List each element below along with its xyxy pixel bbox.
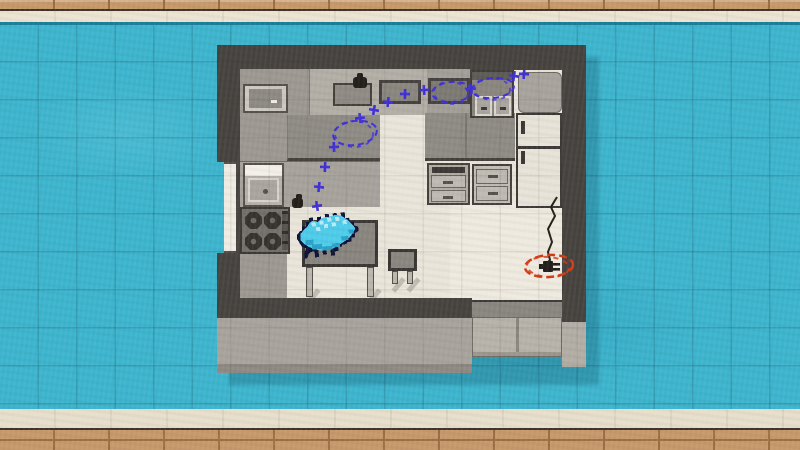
window-left <box>224 162 236 253</box>
wall-top <box>217 45 586 70</box>
burner-icon <box>264 212 281 229</box>
counter-left-bottom <box>240 254 287 298</box>
exterior-cabinet-fronts <box>472 317 562 357</box>
cabinet-divider <box>516 318 519 356</box>
table[interactable] <box>302 220 378 267</box>
wall-left-upper <box>217 45 240 162</box>
oven-drawer <box>431 190 466 202</box>
sink-basin-left <box>475 96 492 116</box>
brick-trim-bottom <box>0 430 800 450</box>
kettle-lid <box>357 73 363 78</box>
burner-icon <box>245 233 262 250</box>
microwave-door <box>249 89 282 108</box>
counter-island-center <box>287 115 380 161</box>
counter-island-right <box>425 113 515 161</box>
game-scene <box>0 0 800 450</box>
exterior-apron <box>217 318 472 364</box>
ground-edge-line <box>0 22 800 25</box>
double-sink[interactable] <box>470 70 514 118</box>
burner-icon <box>264 233 281 250</box>
drawer-pull <box>443 196 453 199</box>
drain-icon <box>263 189 268 194</box>
faucet-handle-icon <box>500 107 506 110</box>
sink-basin-right <box>494 96 511 116</box>
oven[interactable] <box>427 163 470 205</box>
stove-knobs <box>282 211 288 250</box>
counter-left-column <box>240 115 287 162</box>
exterior-apron-edge <box>217 364 472 373</box>
counter-seam <box>465 113 467 158</box>
microwave-handle <box>271 100 277 103</box>
fridge-handle-bottom <box>521 151 525 164</box>
kettle[interactable] <box>353 77 367 88</box>
fridge-door-split <box>518 146 560 149</box>
stove[interactable] <box>240 207 290 254</box>
burner-icon <box>245 212 262 229</box>
sink-bowl <box>248 178 279 202</box>
counter-inset-b[interactable] <box>428 78 470 104</box>
fridge-handle-top <box>521 121 525 134</box>
floor-light-patch <box>450 200 562 300</box>
counter-inset-a[interactable] <box>379 80 421 104</box>
cabinet-kickplate <box>473 352 561 356</box>
faucet-handle-icon <box>481 107 487 110</box>
drawer-pull <box>488 175 498 178</box>
sink-backsplash <box>472 72 512 80</box>
drawer <box>476 186 508 201</box>
stool-leg <box>407 271 413 284</box>
pot[interactable] <box>292 198 303 208</box>
stool-leg <box>392 271 398 284</box>
plaster-strip-top <box>0 11 800 22</box>
drawer-unit[interactable] <box>472 164 512 205</box>
exterior-right-column <box>562 322 586 367</box>
sink-rim <box>245 165 282 176</box>
corner-cabinet[interactable] <box>518 72 562 113</box>
oven-drawer <box>431 175 466 188</box>
fridge[interactable] <box>516 113 562 208</box>
drawer-pull <box>488 192 498 195</box>
stool[interactable] <box>388 249 417 271</box>
microwave[interactable] <box>243 84 288 113</box>
table-leg <box>367 267 374 297</box>
pot-lid <box>296 194 302 199</box>
brick-trim-top <box>0 0 800 11</box>
kitchen-sink[interactable] <box>243 163 284 207</box>
exterior-counter-bar <box>472 300 562 317</box>
wall-bottom <box>217 298 472 318</box>
table-leg <box>306 267 313 297</box>
plaster-strip-bottom <box>0 409 800 430</box>
oven-control-bar <box>432 167 465 173</box>
drawer-pull <box>443 181 453 184</box>
drawer <box>476 169 508 184</box>
wall-right <box>562 45 586 322</box>
